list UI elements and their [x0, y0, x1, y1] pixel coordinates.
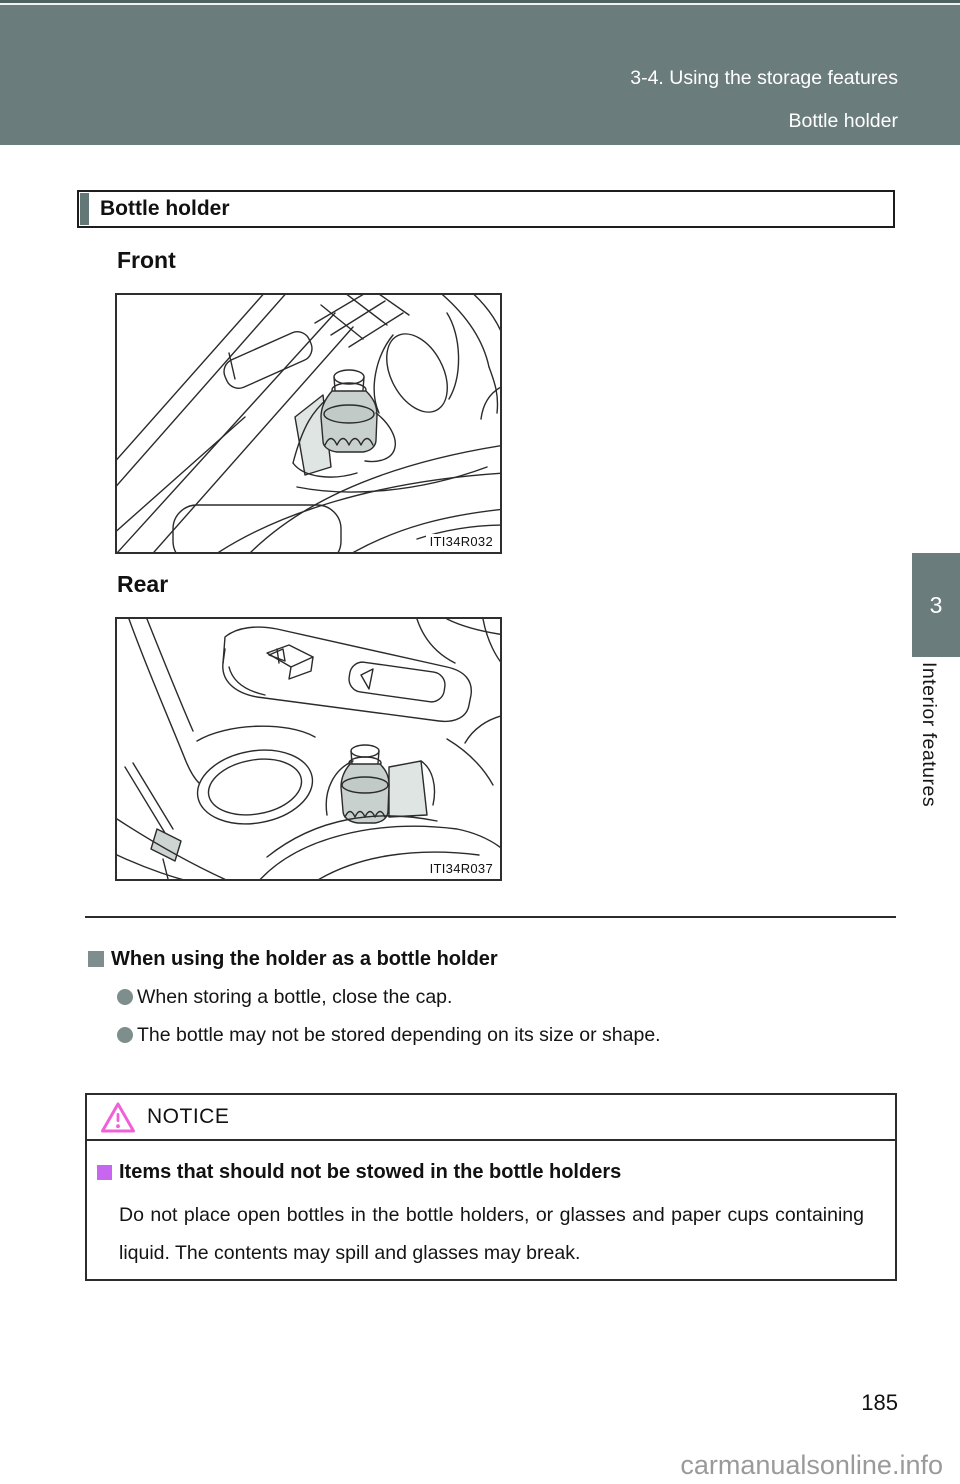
header-band: 3-4. Using the storage features Bottle h…: [0, 5, 960, 145]
circle-bullet-icon: [117, 1027, 133, 1043]
watermark: carmanualsonline.info: [680, 1450, 943, 1481]
warning-triangle-icon: [100, 1101, 136, 1134]
section-title-box: Bottle holder: [77, 190, 895, 228]
breadcrumb: 3-4. Using the storage features: [630, 67, 898, 90]
notice-square-bullet-icon: [97, 1165, 112, 1180]
header-section-name: Bottle holder: [789, 110, 899, 133]
chapter-number: 3: [930, 592, 943, 619]
page-number: 185: [861, 1390, 898, 1416]
front-figure: ITI34R032: [115, 293, 502, 554]
rear-figure-code: ITI34R037: [426, 861, 493, 876]
front-figure-illustration: [117, 295, 500, 552]
notice-heading-row: Items that should not be stowed in the b…: [97, 1161, 895, 1184]
rear-figure-illustration: [117, 619, 500, 879]
chapter-tab: 3: [912, 553, 960, 657]
section-title-accent-bar: [80, 193, 89, 225]
notice-box: NOTICE Items that should not be stowed i…: [85, 1093, 897, 1281]
notice-title: NOTICE: [147, 1105, 229, 1129]
manual-page: 3-4. Using the storage features Bottle h…: [0, 0, 960, 1484]
info-bullet-row: When storing a bottle, close the cap.: [117, 986, 452, 1008]
notice-header: NOTICE: [87, 1095, 895, 1141]
circle-bullet-icon: [117, 989, 133, 1005]
notice-body: Do not place open bottles in the bottle …: [119, 1196, 864, 1272]
rear-figure: ITI34R037: [115, 617, 502, 881]
rear-heading: Rear: [117, 571, 168, 598]
info-bullet-row: The bottle may not be stored depending o…: [117, 1024, 661, 1046]
info-bullet-text: When storing a bottle, close the cap.: [137, 986, 452, 1008]
chapter-name-vertical: Interior features: [917, 662, 940, 912]
front-figure-code: ITI34R032: [426, 534, 493, 549]
info-bullet-text: The bottle may not be stored depending o…: [137, 1024, 661, 1046]
info-heading: When using the holder as a bottle holder: [111, 948, 498, 970]
info-heading-row: When using the holder as a bottle holder: [88, 948, 498, 970]
section-divider: [85, 916, 896, 918]
square-bullet-icon: [88, 951, 104, 967]
notice-heading: Items that should not be stowed in the b…: [119, 1161, 621, 1184]
section-title: Bottle holder: [100, 197, 230, 221]
front-heading: Front: [117, 247, 176, 274]
